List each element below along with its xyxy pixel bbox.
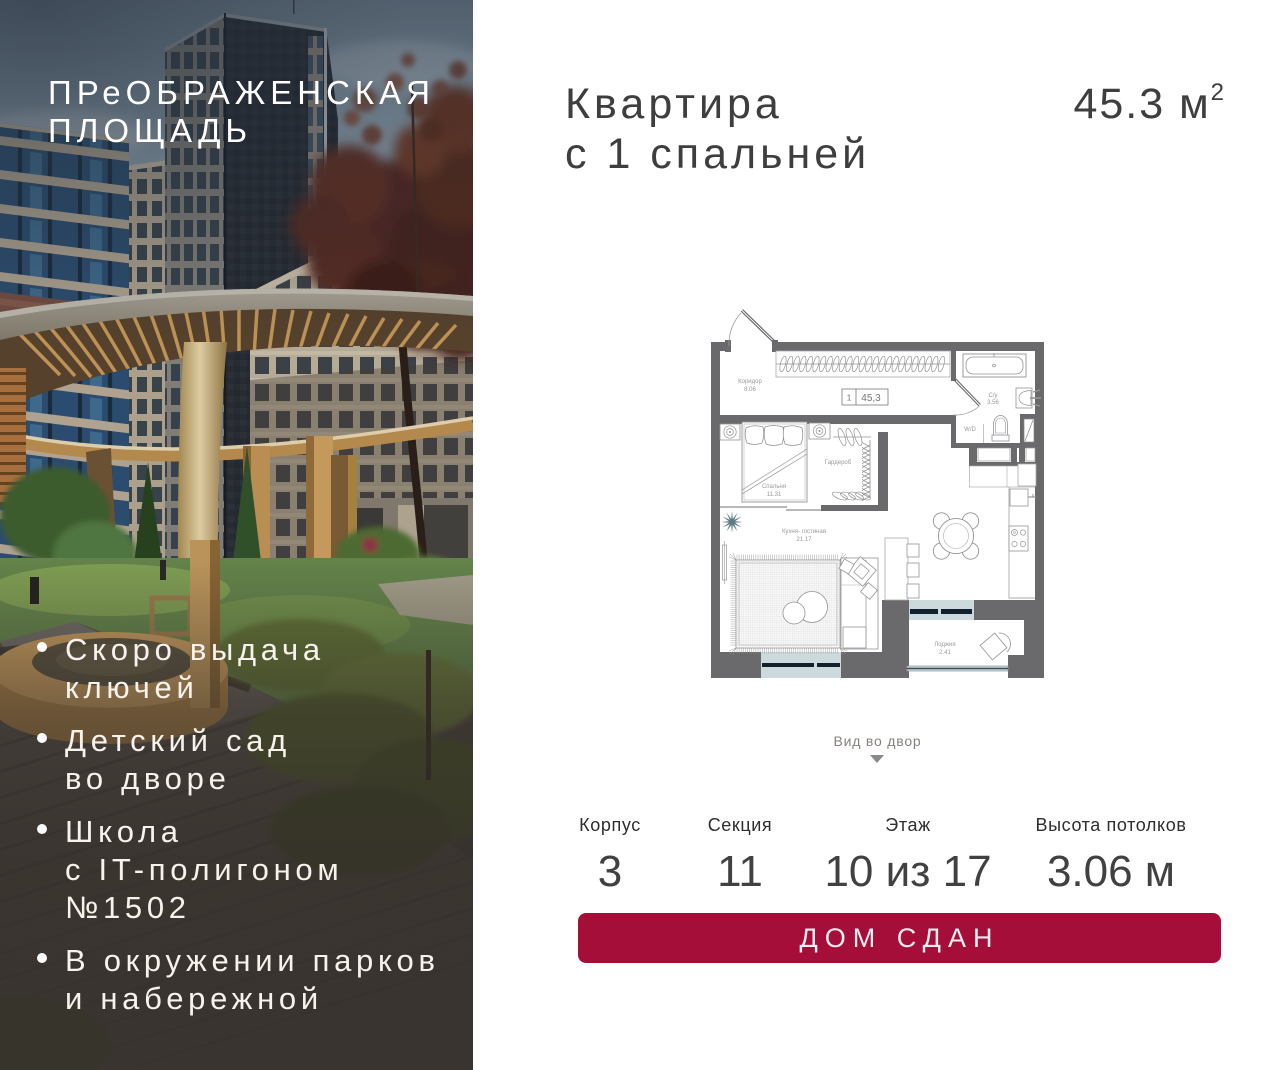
svg-text:8.06: 8.06 bbox=[744, 387, 756, 393]
svg-text:С/у: С/у bbox=[989, 393, 998, 399]
svg-text:3.56: 3.56 bbox=[987, 400, 999, 406]
svg-text:21.17: 21.17 bbox=[796, 537, 812, 543]
svg-text:2.41: 2.41 bbox=[939, 650, 951, 656]
svg-text:Коридор: Коридор bbox=[738, 379, 762, 385]
svg-text:Кухня- гостиная: Кухня- гостиная bbox=[782, 529, 826, 535]
svg-text:45,3: 45,3 bbox=[861, 393, 881, 404]
svg-text:11.31: 11.31 bbox=[767, 492, 782, 498]
svg-text:Спальня: Спальня bbox=[762, 484, 786, 490]
svg-text:Лоджия: Лоджия bbox=[934, 642, 955, 648]
svg-text:1: 1 bbox=[847, 393, 852, 403]
svg-text:Гардероб: Гардероб bbox=[825, 460, 852, 466]
svg-text:W/D: W/D bbox=[964, 427, 976, 433]
